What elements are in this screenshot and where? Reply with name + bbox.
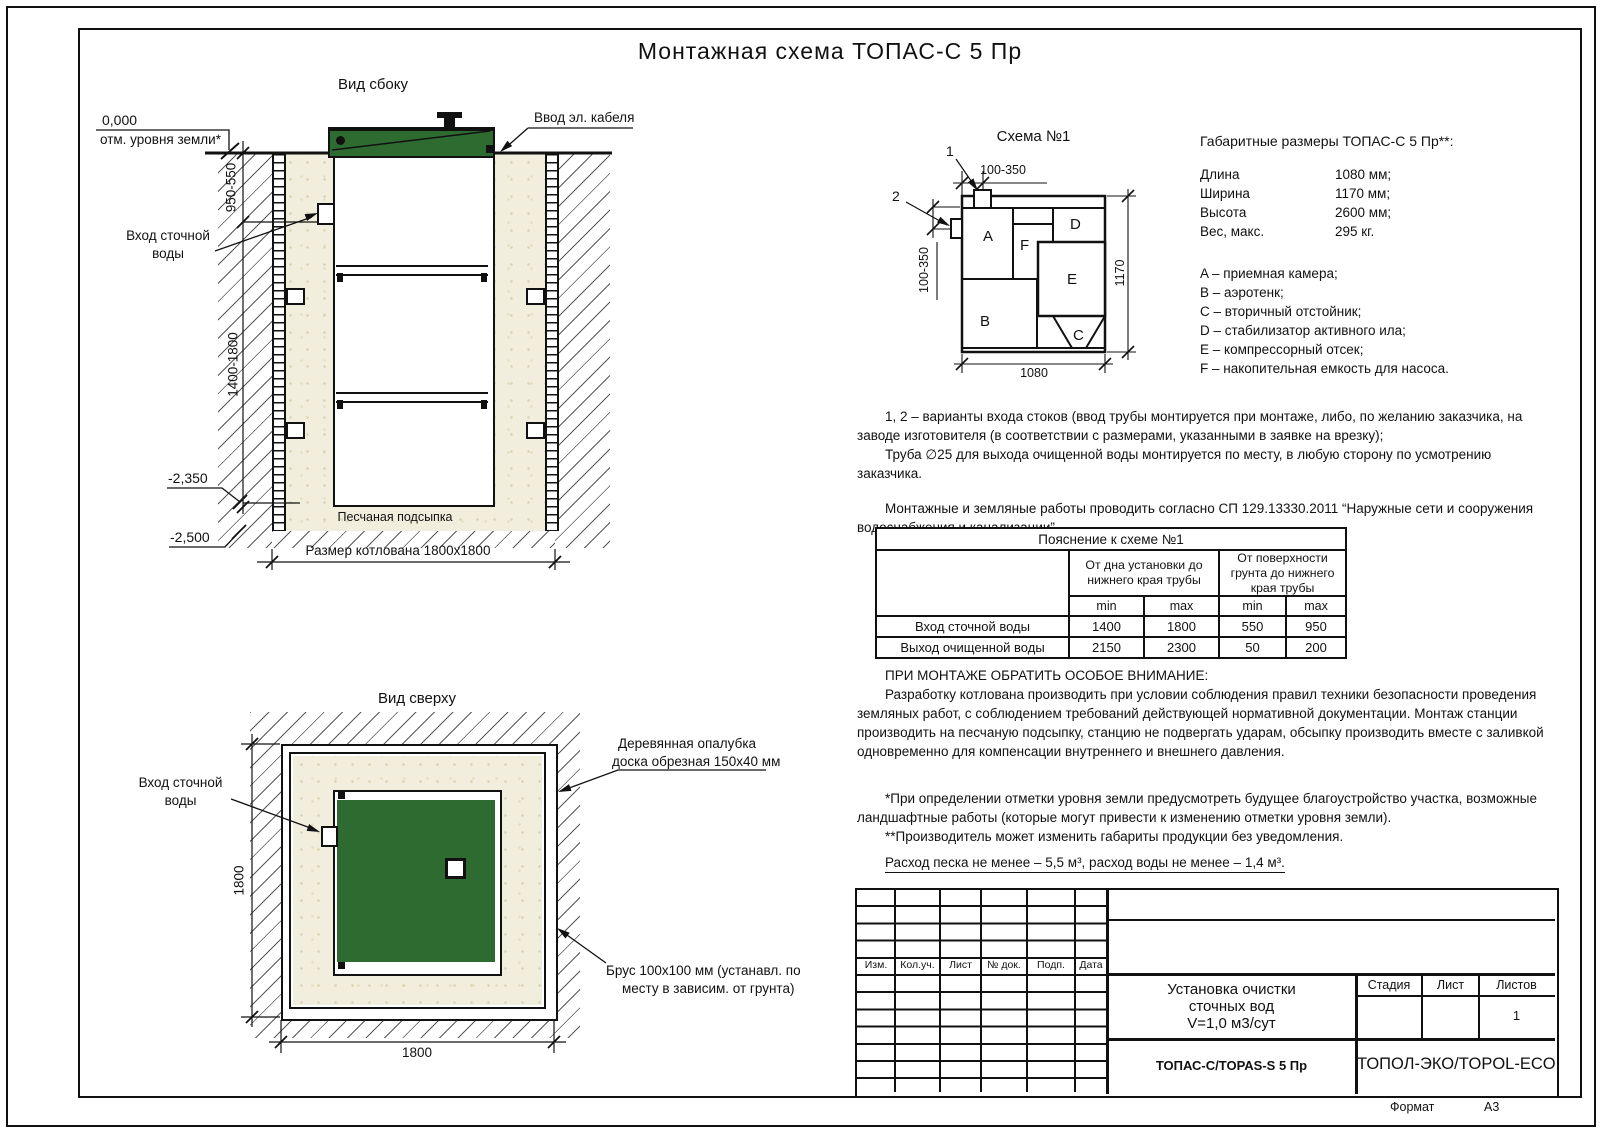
top-inlet-label-line2: воды: [128, 793, 233, 808]
top-view-inlet-stub: [321, 826, 338, 847]
attention-body: Разработку котлована производить при усл…: [857, 685, 1552, 761]
soil-hatch-right: [555, 154, 610, 548]
top-view-dim-vertical: 1800: [232, 856, 247, 906]
attention-block: ПРИ МОНТАЖЕ ОБРАТИТЬ ОСОБОЕ ВНИМАНИЕ: Ра…: [857, 666, 1552, 761]
schema-dim-height: 1170: [1113, 248, 1127, 298]
row-value: 2300: [1144, 637, 1219, 658]
schema-title: Схема №1: [961, 128, 1106, 145]
schema-marker-2: 2: [892, 188, 900, 204]
legend-item: E – компрессорный отсек;: [1200, 342, 1363, 357]
spec-label: Высота: [1200, 205, 1246, 220]
side-view-title: Вид сбоку: [313, 76, 433, 93]
tb-stage-label: Стадия: [1357, 978, 1421, 992]
row-value: 1400: [1069, 616, 1144, 637]
table-row: Выход очищенной воды 2150 2300 50 200: [876, 637, 1346, 658]
schema-comp-c: C: [1073, 327, 1084, 344]
formwork-label-line2: доска обрезная 150х40 мм: [612, 754, 780, 769]
schema-dim-width: 1080: [994, 366, 1074, 380]
tb-col-podp: Подп.: [1029, 959, 1073, 971]
wall-clip: [526, 288, 545, 305]
table-min-header: min: [1069, 596, 1144, 616]
cable-entry-point: [486, 145, 494, 153]
table-group2-header: От поверхности грунта до нижнего края тр…: [1219, 550, 1346, 596]
wall-clip: [526, 422, 545, 439]
zero-level-caption: отм. уровня земли*: [100, 132, 221, 147]
table-max-header: max: [1286, 596, 1346, 616]
tb-model: ТОПАС-С/TOPAS-S 5 Пр: [1110, 1058, 1353, 1073]
plate-hatch-square: [445, 858, 466, 879]
row-label: Выход очищенной воды: [876, 637, 1069, 658]
inlet-pipe-stub: [317, 203, 335, 225]
spec-label: Вес, макс.: [1200, 224, 1264, 239]
top-inlet-label-line1: Вход сточной: [128, 775, 233, 790]
pit-size-label: Размер котлована 1800х1800: [288, 543, 508, 558]
format-value: А3: [1484, 1100, 1499, 1114]
tb-sheet-label: Лист: [1423, 978, 1478, 992]
tb-sheets-label: Листов: [1480, 978, 1553, 992]
footnote-1: *При определении отметки уровня земли пр…: [857, 789, 1557, 827]
title-block-line-h1: [1108, 919, 1555, 921]
title-block-left-grid: [857, 890, 1106, 1092]
schema-marker-1: 1: [946, 143, 954, 159]
divider-nub: [337, 273, 343, 282]
cable-entry-label: Ввод эл. кабеля: [534, 110, 634, 125]
plate-corner-mark: [338, 792, 345, 799]
tank-lid: [328, 127, 495, 158]
row-value: 550: [1219, 616, 1286, 637]
tank-body: [333, 154, 495, 507]
tb-sheets-value: 1: [1480, 1008, 1553, 1023]
consumption-note: Расход песка не менее – 5,5 м³, расход в…: [885, 855, 1285, 873]
dim-depth-top: 950-550: [224, 153, 239, 223]
table-group1-header: От дна установки до нижнего края трубы: [1069, 550, 1219, 596]
inlet-label-line1: Вход сточной: [118, 228, 218, 243]
tb-col-koluch: Кол.уч.: [895, 959, 940, 971]
schema-comp-e: E: [1067, 271, 1077, 288]
vent-stem: [444, 118, 455, 128]
timber-wall-left: [272, 154, 286, 531]
note-pipe: Труба ∅25 для выхода очищенной воды монт…: [857, 445, 1557, 483]
doc-title-line1: Установка очистки: [1110, 981, 1353, 998]
doc-title-line2: сточных вод: [1110, 998, 1353, 1015]
specs-title: Габаритные размеры ТОПАС-С 5 Пр**:: [1200, 133, 1454, 149]
legend-item: B – аэротенк;: [1200, 285, 1284, 300]
title-block-line-stage-under: [1357, 995, 1555, 997]
row-value: 1800: [1144, 616, 1219, 637]
title-block-line-h2: [1108, 973, 1555, 976]
explanation-table: Пояснение к схеме №1 От дна установки до…: [875, 527, 1347, 659]
tb-col-data: Дата: [1069, 959, 1113, 971]
beam-label-line2: месту в зависим. от грунта): [622, 981, 794, 996]
level-tank-bottom: -2,350: [168, 470, 208, 486]
drawing-sheet: Монтажная схема ТОПАС-С 5 Пр Вид сбоку 0…: [0, 0, 1600, 1131]
doc-title-line3: V=1,0 м3/сут: [1110, 1015, 1353, 1032]
formwork-label-line1: Деревянная опалубка: [618, 736, 756, 751]
title-block-line-h3: [1108, 1038, 1555, 1041]
row-value: 200: [1286, 637, 1346, 658]
tank-plate-green: [337, 800, 495, 962]
spec-value: 295 кг.: [1335, 224, 1374, 239]
wall-clip: [286, 422, 305, 439]
sand-label: Песчаная подсыпка: [330, 510, 460, 524]
spec-value: 1170 мм;: [1335, 186, 1390, 201]
table-min-header: min: [1219, 596, 1286, 616]
inlet-label-line2: воды: [118, 246, 218, 261]
attention-heading: ПРИ МОНТАЖЕ ОБРАТИТЬ ОСОБОЕ ВНИМАНИЕ:: [857, 666, 1552, 685]
zero-level-mark: 0,000: [102, 112, 137, 128]
legend-item: C – вторичный отстойник;: [1200, 304, 1361, 319]
row-value: 950: [1286, 616, 1346, 637]
table-corner-cell: [876, 550, 1069, 616]
level-pit-bottom: -2,500: [170, 529, 210, 545]
format-label: Формат: [1390, 1100, 1434, 1114]
divider-nub: [481, 273, 487, 282]
beam-label-line1: Брус 100х100 мм (устанавл. по: [606, 963, 801, 978]
spec-label: Ширина: [1200, 186, 1250, 201]
legend-item: A – приемная камера;: [1200, 266, 1338, 281]
schema-comp-b: B: [980, 313, 990, 330]
top-view-title: Вид сверху: [357, 690, 477, 707]
wall-clip: [286, 288, 305, 305]
dim-depth-bottom: 1400-1800: [226, 325, 241, 405]
notes-block: 1, 2 – варианты входа стоков (ввод трубы…: [857, 407, 1557, 537]
tb-col-ndok: № док.: [982, 959, 1026, 971]
explanation-table-wrap: Пояснение к схеме №1 От дна установки до…: [875, 527, 1347, 659]
schema-dim-top: 100-350: [963, 163, 1043, 177]
lid-bolt: [336, 136, 345, 145]
schema-comp-a: A: [983, 228, 993, 245]
tb-company: ТОПОЛ-ЭКО/TOPOL-ECO: [1357, 1055, 1553, 1074]
row-value: 50: [1219, 637, 1286, 658]
tank-divider-lower: [336, 392, 488, 403]
footnote-2: **Производитель может изменить габариты …: [857, 827, 1557, 846]
spec-label: Длина: [1200, 167, 1240, 182]
top-view-dim-horizontal: 1800: [377, 1045, 457, 1060]
timber-wall-right: [545, 154, 559, 531]
table-row: Вход сточной воды 1400 1800 550 950: [876, 616, 1346, 637]
plate-corner-mark: [338, 962, 345, 969]
divider-nub: [481, 400, 487, 409]
schema-comp-d: D: [1070, 216, 1081, 233]
footnotes-block: *При определении отметки уровня земли пр…: [857, 789, 1557, 846]
table-title: Пояснение к схеме №1: [876, 528, 1346, 550]
divider-nub: [337, 400, 343, 409]
tank-divider-upper: [336, 265, 488, 276]
schema-dim-left: 100-350: [917, 240, 931, 300]
row-value: 2150: [1069, 637, 1144, 658]
schema-comp-f: F: [1020, 237, 1029, 254]
tb-col-list: Лист: [938, 959, 983, 971]
legend-item: D – стабилизатор активного ила;: [1200, 323, 1406, 338]
note-variants: 1, 2 – варианты входа стоков (ввод трубы…: [857, 407, 1557, 445]
tb-col-izm: Изм.: [854, 959, 898, 971]
spec-value: 1080 мм;: [1335, 167, 1391, 182]
table-max-header: max: [1144, 596, 1219, 616]
page-title: Монтажная схема ТОПАС-С 5 Пр: [430, 38, 1230, 65]
legend-item: F – накопительная емкость для насоса.: [1200, 361, 1449, 376]
row-label: Вход сточной воды: [876, 616, 1069, 637]
spec-value: 2600 мм;: [1335, 205, 1391, 220]
